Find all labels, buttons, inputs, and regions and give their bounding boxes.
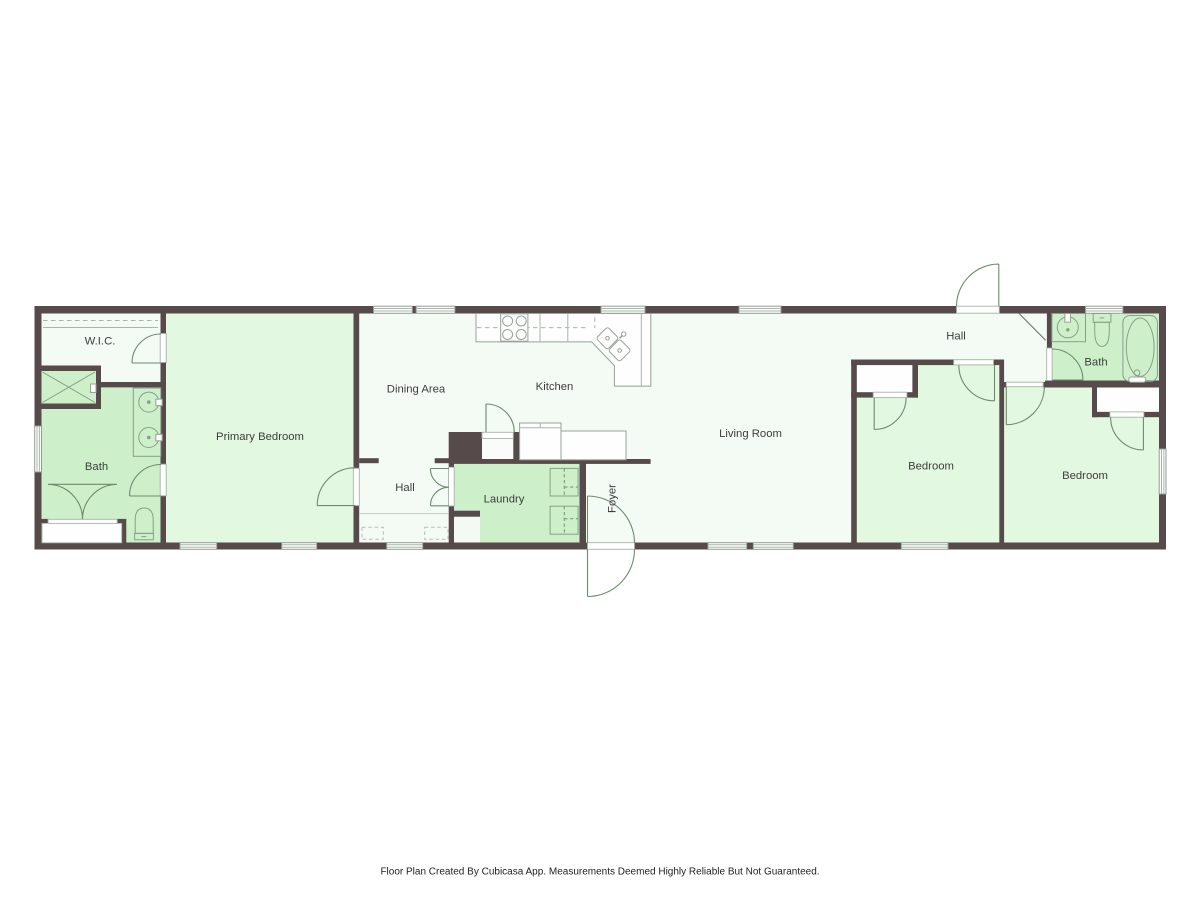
svg-text:Bedroom: Bedroom (1062, 470, 1108, 482)
svg-text:Laundry: Laundry (484, 494, 525, 506)
svg-text:W.I.C.: W.I.C. (85, 336, 116, 348)
svg-text:Hall: Hall (395, 482, 414, 494)
svg-text:Bath: Bath (85, 461, 108, 473)
svg-text:Floor Plan Created By Cubicasa: Floor Plan Created By Cubicasa App. Meas… (380, 867, 819, 878)
svg-text:Living Room: Living Room (719, 428, 782, 440)
svg-text:Kitchen: Kitchen (536, 381, 574, 393)
svg-text:Primary Bedroom: Primary Bedroom (216, 431, 304, 443)
svg-text:Bedroom: Bedroom (908, 461, 954, 473)
svg-text:Bath: Bath (1084, 357, 1107, 369)
svg-text:Dining Area: Dining Area (387, 384, 446, 396)
svg-text:Foyer: Foyer (607, 484, 619, 513)
svg-text:Hall: Hall (946, 331, 965, 343)
